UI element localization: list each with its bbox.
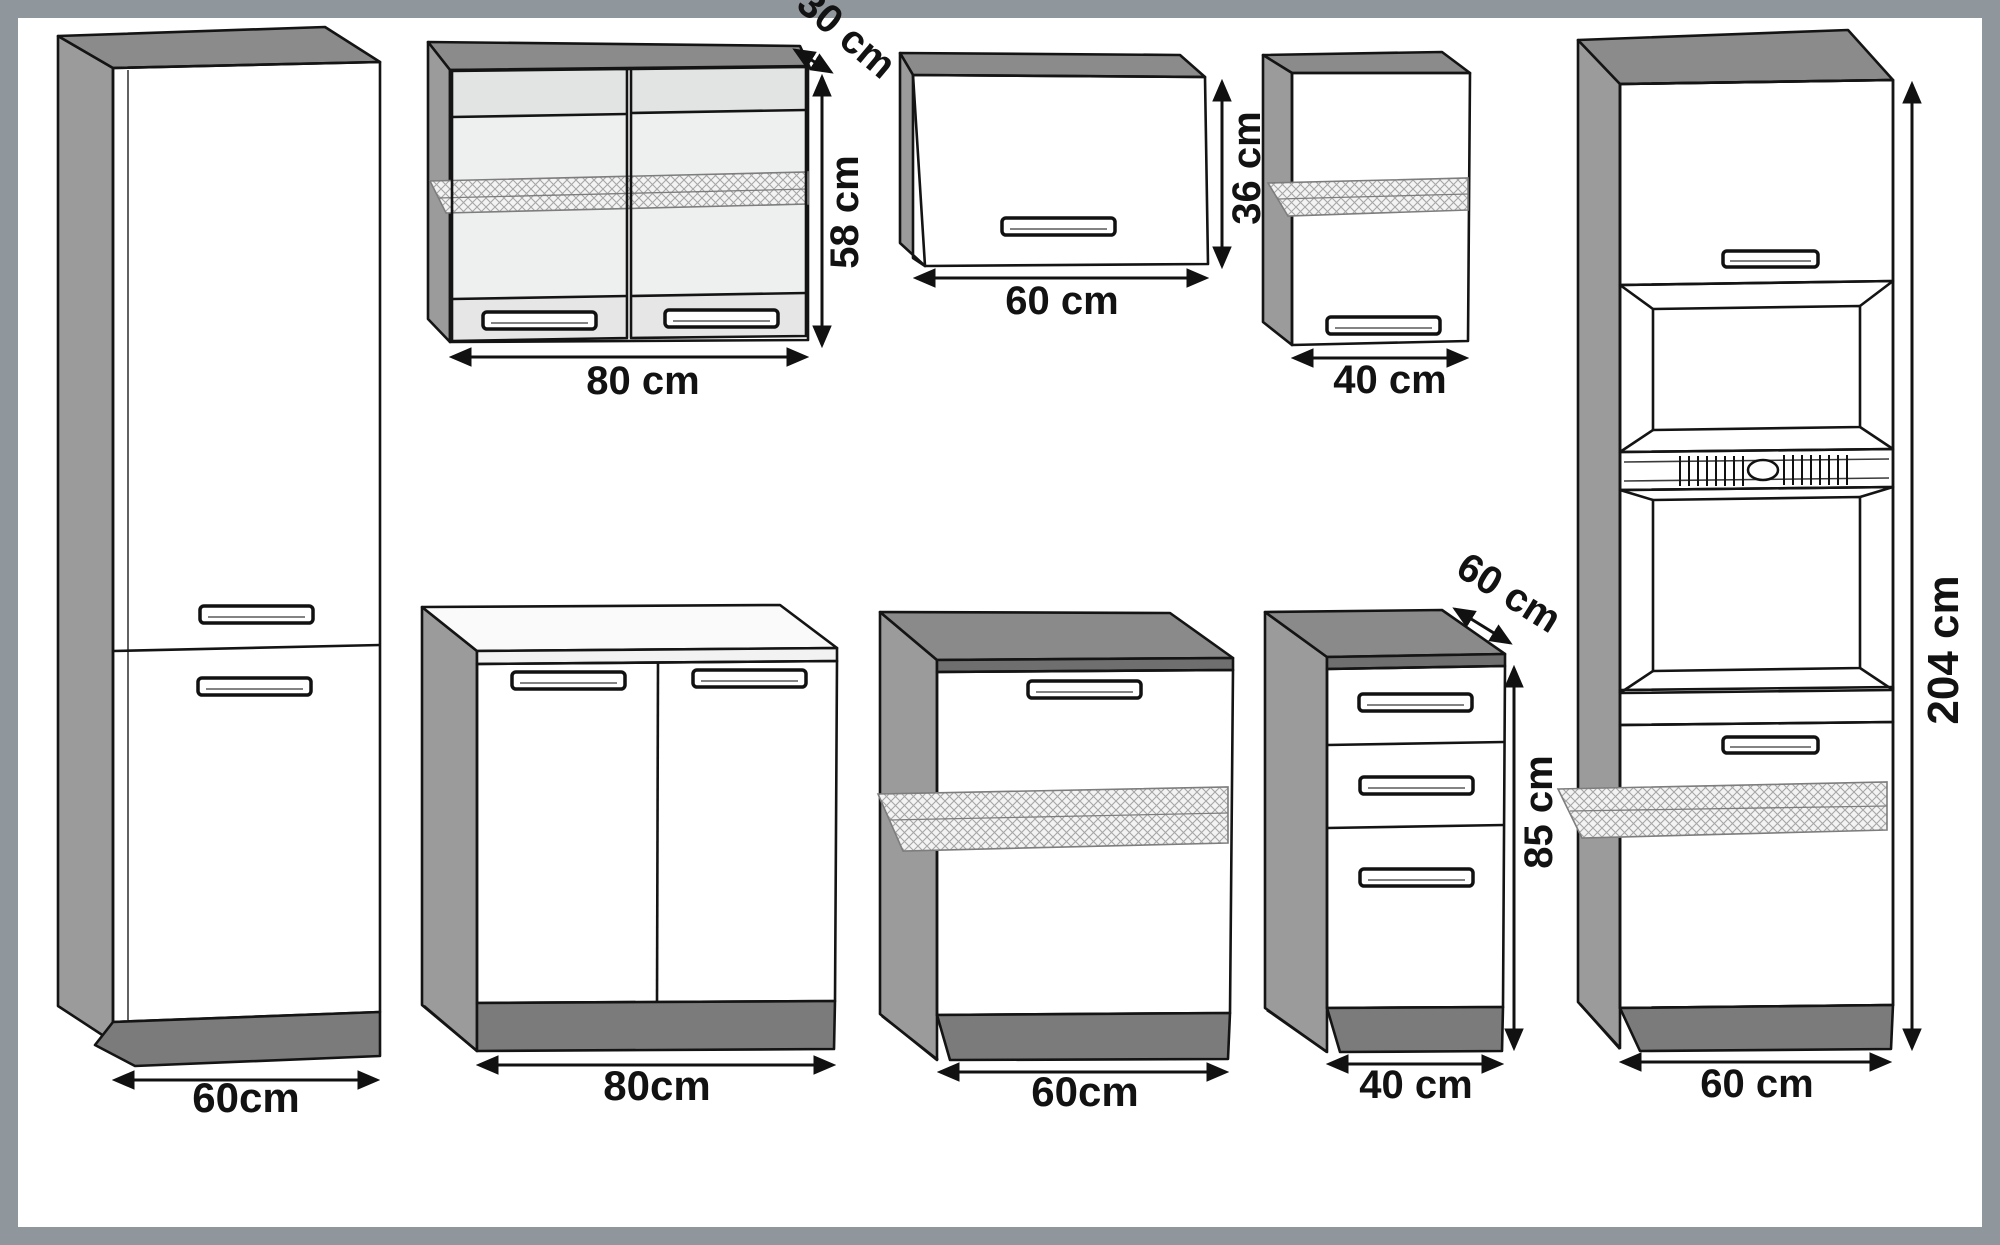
door-handle: [512, 672, 625, 689]
width-dimension-label: 60 cm: [1005, 279, 1118, 323]
vent-knob: [1748, 460, 1778, 480]
wire-shelf: [1558, 782, 1887, 838]
height-dimension-label: 204 cm: [1919, 575, 1968, 724]
left-side-panel: [422, 607, 477, 1051]
top-panel: [1578, 30, 1893, 84]
door-handle: [1028, 681, 1141, 698]
width-dimension-label: 40 cm: [1333, 358, 1446, 402]
plinth: [1620, 1005, 1893, 1051]
left-side-panel: [58, 36, 113, 1042]
door-handle: [1002, 218, 1115, 235]
height-dimension-label: 85 cm: [1517, 755, 1561, 868]
worktop: [422, 605, 837, 651]
width-dimension-label: 80 cm: [586, 359, 699, 403]
glass-door-top-band: [631, 67, 806, 113]
plinth: [477, 1001, 835, 1051]
worktop: [880, 612, 1233, 660]
plinth: [1327, 1007, 1503, 1052]
door-handle: [483, 312, 596, 329]
width-dimension-label: 60cm: [1031, 1068, 1138, 1115]
drawer-handle: [1359, 694, 1472, 711]
plinth: [95, 1012, 380, 1066]
width-dimension-label: 80cm: [603, 1062, 710, 1109]
door-divider: [657, 662, 658, 1002]
height-dimension-label: 58 cm: [823, 155, 867, 268]
plinth: [937, 1013, 1230, 1060]
drawer-handle: [1360, 777, 1473, 794]
width-dimension-label: 60 cm: [1700, 1062, 1813, 1106]
left-side-panel: [1265, 612, 1327, 1052]
wire-shelf: [1268, 178, 1468, 216]
width-dimension-label: 40 cm: [1359, 1063, 1472, 1107]
cabinet-dimension-diagram: 60cm 80 cm 58 cm 30 cm: [0, 0, 2000, 1245]
door-handle: [200, 606, 313, 623]
diagram-canvas: 60cm 80 cm 58 cm 30 cm: [0, 0, 2000, 1245]
door-handle: [1723, 737, 1818, 753]
left-side-panel: [1578, 40, 1620, 1048]
drawer-handle: [1360, 869, 1473, 886]
door-handle: [1723, 251, 1818, 267]
door-handle: [198, 678, 311, 695]
glass-door-top-band: [452, 69, 627, 117]
wire-shelf: [878, 787, 1228, 851]
door-handle: [693, 670, 806, 687]
top-panel: [900, 53, 1205, 77]
top-panel: [1263, 52, 1470, 73]
door-handle: [665, 310, 778, 327]
width-dimension-label: 60cm: [192, 1074, 299, 1121]
door-handle: [1327, 317, 1440, 334]
